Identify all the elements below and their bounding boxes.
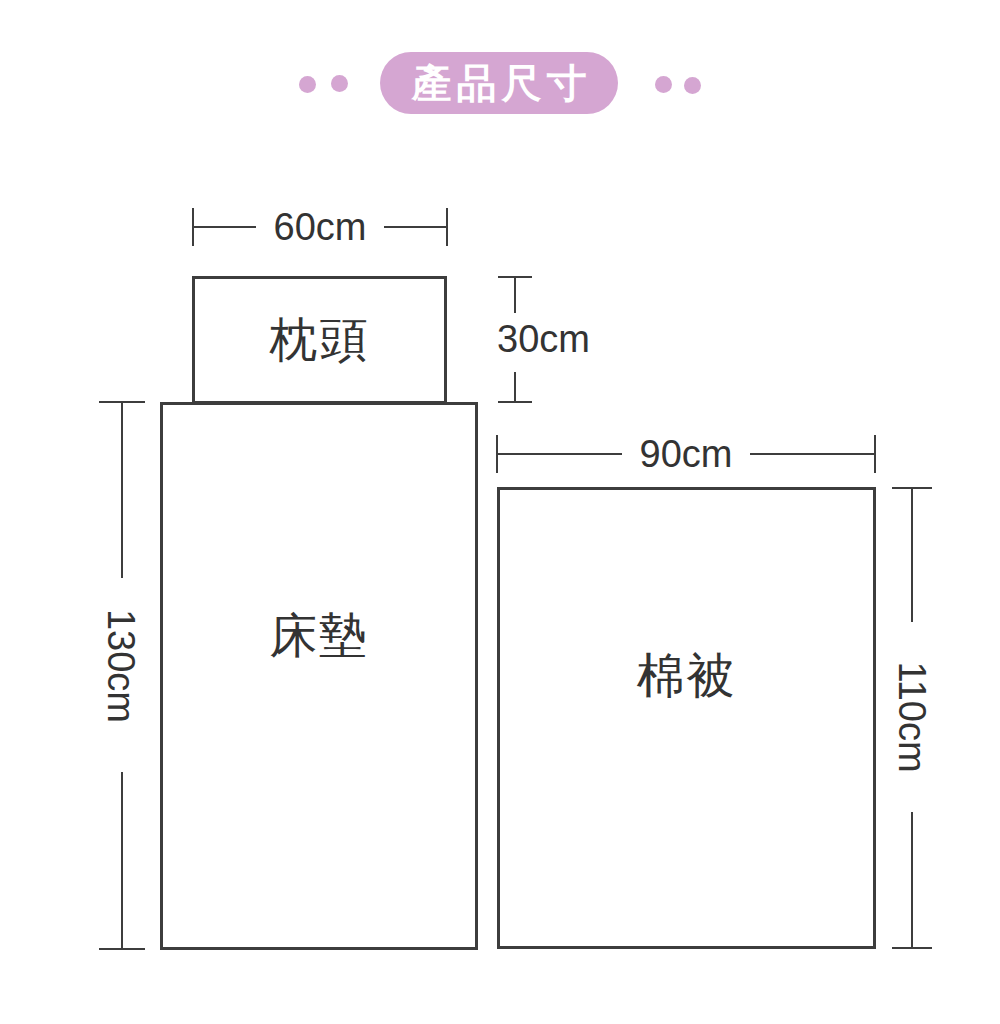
dimension-line-segment bbox=[514, 372, 516, 402]
mattress-height-label: 130cm bbox=[102, 609, 140, 723]
dimension-tick bbox=[874, 435, 876, 473]
dimension-line-segment bbox=[194, 226, 256, 228]
product-dimensions-figure: 產品尺寸 60cm 枕頭 30cm 床墊 130cm 90cm 棉被 bbox=[0, 0, 1000, 1024]
decor-dot bbox=[655, 76, 672, 93]
dimension-line-segment bbox=[121, 402, 123, 578]
quilt-rect: 棉被 bbox=[497, 487, 876, 949]
dimension-line-segment bbox=[514, 277, 516, 313]
quilt-width-label: 90cm bbox=[622, 435, 751, 473]
title-badge: 產品尺寸 bbox=[380, 52, 618, 114]
title-badge-label: 產品尺寸 bbox=[407, 63, 592, 103]
mattress-label: 床墊 bbox=[269, 612, 369, 660]
dimension-cap bbox=[99, 948, 145, 950]
dimension-cap bbox=[498, 401, 532, 403]
dimension-line-segment bbox=[384, 226, 446, 228]
dimension-tick bbox=[446, 208, 448, 246]
dimension-line-segment bbox=[911, 488, 913, 622]
dimension-line-segment bbox=[121, 772, 123, 948]
mattress-rect: 床墊 bbox=[160, 402, 478, 950]
pillow-height-label: 30cm bbox=[497, 320, 590, 358]
dimension-line-segment bbox=[498, 453, 622, 455]
pillow-width-dimension: 60cm bbox=[192, 208, 448, 246]
pillow-label: 枕頭 bbox=[270, 316, 370, 364]
dimension-cap bbox=[892, 947, 932, 949]
quilt-label: 棉被 bbox=[637, 652, 737, 700]
dimension-line-segment bbox=[750, 453, 874, 455]
quilt-height-label: 110cm bbox=[893, 661, 931, 772]
dimension-line-segment bbox=[911, 812, 913, 947]
pillow-rect: 枕頭 bbox=[192, 276, 447, 404]
decor-dot bbox=[684, 77, 701, 94]
pillow-width-label: 60cm bbox=[256, 208, 385, 246]
quilt-width-dimension: 90cm bbox=[496, 435, 876, 473]
decor-dot bbox=[331, 75, 348, 92]
decor-dot bbox=[299, 76, 316, 93]
